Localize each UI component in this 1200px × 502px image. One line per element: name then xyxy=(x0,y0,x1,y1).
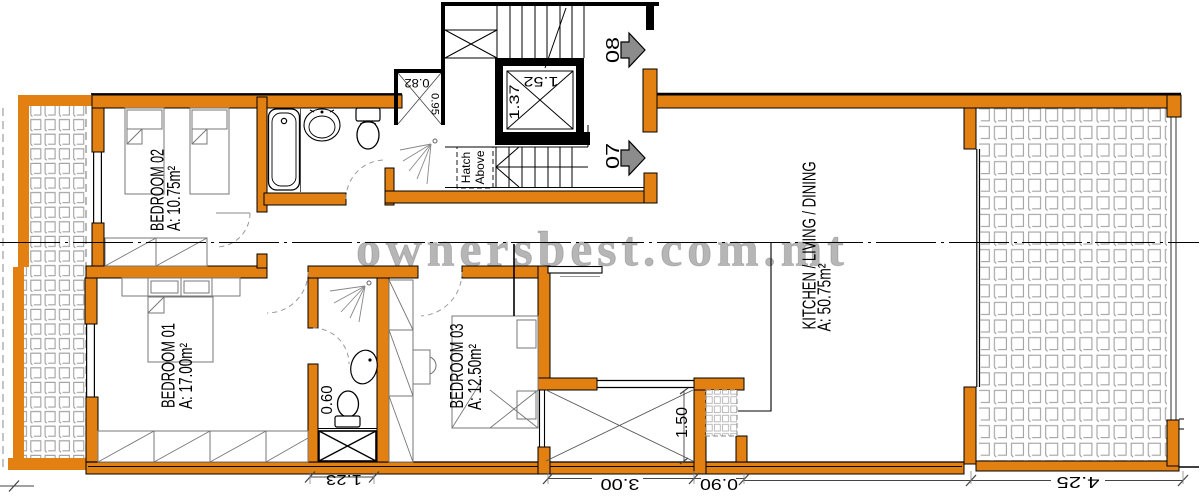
svg-text:1.50: 1.50 xyxy=(674,407,691,438)
svg-text:0.82: 0.82 xyxy=(404,76,429,90)
svg-text:A: 12.50m²: A: 12.50m² xyxy=(465,344,485,410)
svg-text:Above: Above xyxy=(473,150,487,184)
svg-text:08: 08 xyxy=(603,37,623,63)
svg-text:1.23: 1.23 xyxy=(326,471,362,488)
svg-text:A: 17.00m²: A: 17.00m² xyxy=(176,343,196,409)
svg-text:BEDROOM 03: BEDROOM 03 xyxy=(447,324,467,409)
svg-text:1.52: 1.52 xyxy=(524,74,559,89)
svg-text:07: 07 xyxy=(603,143,623,169)
svg-text:1.37: 1.37 xyxy=(507,85,522,120)
svg-text:0.60: 0.60 xyxy=(319,385,336,414)
svg-text:0.90: 0.90 xyxy=(700,475,738,492)
svg-text:Hatch: Hatch xyxy=(459,152,473,183)
svg-text:3.00: 3.00 xyxy=(600,475,639,492)
svg-text:A: 10.75m²: A: 10.75m² xyxy=(164,166,184,231)
svg-text:A: 50.75m²: A: 50.75m² xyxy=(815,264,835,332)
svg-text:4.25: 4.25 xyxy=(1056,473,1099,490)
svg-text:0.95: 0.95 xyxy=(429,93,441,115)
